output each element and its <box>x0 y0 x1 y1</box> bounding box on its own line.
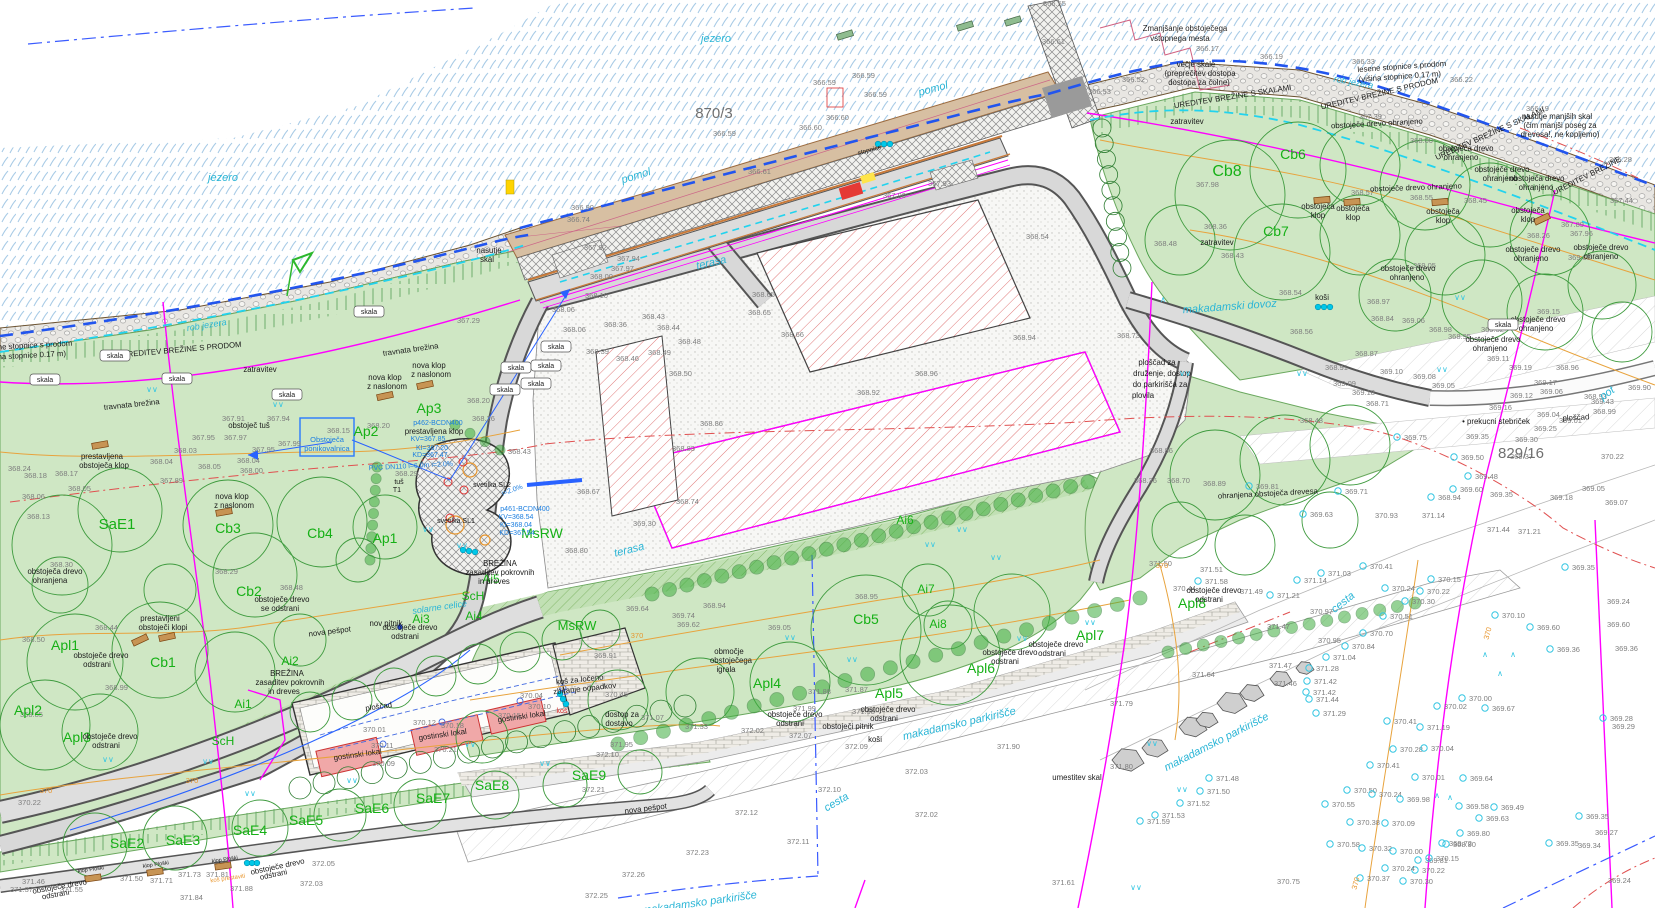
grass-tuft-mark: ∨∨ <box>539 759 551 768</box>
grass-tuft-mark: ∧ <box>1497 669 1503 678</box>
spot-elevation: 369.63 <box>1310 510 1333 519</box>
annotation-label: ohranjeno <box>1390 273 1425 282</box>
planting-code-label: Ai4 <box>465 609 483 623</box>
bush-circle <box>1029 488 1043 502</box>
spot-elevation: 370.21 <box>434 745 457 754</box>
annotation-label: BREŽINA <box>483 559 518 568</box>
bush-circle <box>371 474 381 484</box>
red-note-label: koš <box>557 708 568 715</box>
spot-elevation: 370.97 <box>1310 607 1333 616</box>
spot-elevation: 368.54 <box>1026 232 1049 241</box>
spot-elevation: 371.04 <box>1333 653 1356 662</box>
elevation-point-marker <box>1382 865 1388 871</box>
planting-code-label: Cb3 <box>215 520 241 536</box>
spot-elevation: 369.91 <box>594 651 617 660</box>
annotation-label: odstrani <box>83 660 111 669</box>
annotation-label: obstoječe drevo <box>767 710 823 719</box>
spot-elevation: 366.53 <box>1088 87 1111 96</box>
spot-elevation: 368.48 <box>678 337 701 346</box>
spot-elevation: 368.86 <box>700 419 723 428</box>
skala-tag: skala <box>169 376 185 383</box>
elevation-point-marker <box>1492 612 1498 618</box>
spot-elevation: 372.02 <box>741 726 764 735</box>
bush-circle <box>1046 484 1060 498</box>
spot-elevation: 367.92 <box>584 243 607 252</box>
bush-circle <box>767 556 781 570</box>
spot-elevation: 371.28 <box>1316 664 1339 673</box>
bush-circle <box>697 574 711 588</box>
annotation-label: se odstrani <box>261 604 299 613</box>
planting-code-label: Cb7 <box>1263 223 1289 239</box>
bush-circle <box>732 565 746 579</box>
skala-tag: skala <box>508 365 524 372</box>
spot-elevation: 366.74 <box>567 215 590 224</box>
spot-elevation: 370.15 <box>1436 854 1459 863</box>
bush-circle <box>747 699 761 713</box>
skala-tag: skala <box>107 353 123 360</box>
annotation-label: prestavljeni <box>140 614 180 623</box>
spot-elevation: 368.84 <box>1371 314 1394 323</box>
spot-elevation: 368.65 <box>752 290 775 299</box>
spot-elevation: 368.04 <box>150 457 173 466</box>
annotation-label: vstopnega mesta <box>1150 34 1210 43</box>
bush-circle <box>941 511 955 525</box>
annotation-label: obstoječe drevo <box>73 651 129 660</box>
spot-elevation: 370.75 <box>1277 877 1300 886</box>
spot-elevation: 366.59 <box>864 90 887 99</box>
spot-elevation: 368.29 <box>215 567 238 576</box>
spot-elevation: 368.26 <box>1527 231 1550 240</box>
annotation-label: zasaditev pokrovnih <box>466 568 535 577</box>
annotation-label: • prekucni stebriček <box>1462 417 1530 426</box>
bush-circle <box>959 506 973 520</box>
annotation-label: dostopa za čolne) <box>1168 78 1230 87</box>
planting-code-label: Ap2 <box>354 423 379 439</box>
spot-elevation: 371.03 <box>1328 569 1351 578</box>
annotation-label: nova klop <box>368 373 402 382</box>
spot-elevation: 369.07 <box>1605 498 1628 507</box>
spot-elevation: 368.50 <box>22 635 45 644</box>
elevation-point-marker <box>1304 678 1310 684</box>
utility-tech-label: KV=368.54 <box>499 514 534 521</box>
spot-elevation: 368.05 <box>68 484 91 493</box>
spot-elevation: 368.96 <box>915 369 938 378</box>
spot-elevation: 370.38 <box>1357 818 1380 827</box>
spot-elevation: 370.70 <box>1370 629 1393 638</box>
bush-circle <box>289 777 311 799</box>
spot-elevation: 367.93 <box>928 179 951 188</box>
annotation-label: ploščad <box>1562 412 1589 422</box>
spot-elevation: 368.49 <box>648 348 671 357</box>
spot-elevation: 370.45 <box>605 690 628 699</box>
spot-elevation: 368.70 <box>1167 476 1190 485</box>
spot-elevation: 367.89 <box>1561 220 1584 229</box>
annotation-label: zasaditev pokrovnih <box>256 678 325 687</box>
elevation-point-marker <box>1434 703 1440 709</box>
spot-elevation: 371.50 <box>120 874 143 883</box>
planting-code-label: SaE8 <box>475 777 509 793</box>
elevation-point-marker <box>1267 592 1273 598</box>
annotation-label: ohranjeno <box>1519 324 1554 333</box>
elevation-point-marker <box>1327 841 1333 847</box>
grass-tuft-mark: ∨∨ <box>1146 739 1158 748</box>
spot-elevation: 368.92 <box>857 388 880 397</box>
bush-circle <box>1110 597 1124 611</box>
bush-circle <box>369 509 379 519</box>
spot-elevation: 368.80 <box>565 546 588 555</box>
annotation-label: ohranjeno <box>1473 344 1508 353</box>
spot-elevation: 368.66 <box>781 330 804 339</box>
bush-circle <box>1180 643 1192 655</box>
spot-elevation: 369.36 <box>1557 645 1580 654</box>
utility-tech-label: Obstoječa <box>310 435 345 444</box>
spot-elevation: 369.04 <box>1537 410 1560 419</box>
contour-label: 370 <box>1482 626 1494 640</box>
elevation-point-marker <box>1206 775 1212 781</box>
spot-elevation: 369.71 <box>1345 487 1368 496</box>
annotation-label: večje skale <box>1177 60 1216 69</box>
grass-tuft-mark: ∨∨ <box>846 655 858 664</box>
cyan-dot-marker <box>1321 304 1327 310</box>
spot-elevation: 369.35 <box>1466 432 1489 441</box>
spot-elevation: 369.58 <box>1466 802 1489 811</box>
annotation-label: igrala <box>716 665 736 674</box>
utility-tech-label: KD=367.47 <box>412 452 447 459</box>
spot-elevation: 369.25 <box>1534 424 1557 433</box>
bush-circle <box>465 428 475 438</box>
spot-elevation: 368.97 <box>1367 297 1390 306</box>
spot-elevation: 368.00 <box>240 466 263 475</box>
spot-elevation: 372.21 <box>582 785 605 794</box>
grass-tuft-mark: ∧ <box>1434 791 1440 800</box>
bush-circle <box>1162 646 1174 658</box>
grass-tuft-mark: ∨∨ <box>784 633 796 642</box>
spot-elevation: 372.23 <box>686 848 709 857</box>
spot-elevation: 369.05 <box>1582 484 1605 493</box>
spot-elevation: 368.36 <box>604 320 627 329</box>
spot-elevation: 368.73 <box>1117 331 1140 340</box>
planting-code-label: SaE9 <box>572 767 606 783</box>
spot-elevation: 369.06 <box>1540 387 1563 396</box>
bush-circle <box>1065 610 1079 624</box>
elevation-point-marker <box>1491 804 1497 810</box>
spot-elevation: 370.22 <box>1601 452 1624 461</box>
bush-circle <box>906 654 920 668</box>
annotation-label: obstoječe drevo <box>1510 315 1566 324</box>
rock-polygon <box>1296 662 1314 675</box>
bush-circle <box>997 629 1011 643</box>
annotation-label: zatravitev <box>1200 238 1233 247</box>
spot-elevation: 370.22 <box>18 798 41 807</box>
planting-code-label: Cb5 <box>853 611 879 627</box>
bush-circle <box>750 560 764 574</box>
annotation-label: odstrani <box>1195 595 1223 604</box>
elevation-point-marker <box>1323 654 1329 660</box>
tree-circle <box>1215 515 1275 575</box>
annotation-label: in dreves <box>478 577 510 586</box>
spot-elevation: 369.11 <box>1487 354 1509 363</box>
spot-elevation: 368.43 <box>508 447 531 456</box>
annotation-label: in dreves <box>268 687 300 696</box>
cyan-dot-marker <box>563 701 569 707</box>
spot-elevation: 366.17 <box>1196 44 1219 53</box>
spot-elevation: 369.60 <box>1460 485 1483 494</box>
bush-circle <box>1081 475 1095 489</box>
spot-elevation: 372.02 <box>915 810 938 819</box>
spot-elevation: 371.29 <box>1323 709 1346 718</box>
spot-elevation: 368.94 <box>1438 493 1461 502</box>
bush-circle <box>793 686 807 700</box>
spot-elevation: 368.05 <box>198 462 221 471</box>
spot-elevation: 367.98 <box>1196 180 1219 189</box>
spot-elevation: 372.03 <box>300 879 323 888</box>
spot-elevation: 369.16 <box>1489 403 1512 412</box>
spot-elevation: 368.36 <box>1204 222 1227 231</box>
spot-elevation: 371.59 <box>1147 817 1170 826</box>
annotation-label: obstoječe drevo <box>1028 640 1084 649</box>
elevation-point-marker <box>1390 746 1396 752</box>
bush-circle <box>1133 591 1147 605</box>
grass-tuft-mark: ∨∨ <box>456 541 468 550</box>
spot-elevation: 370.93 <box>1375 511 1398 520</box>
elevation-point-marker <box>1177 800 1183 806</box>
grass-tuft-mark: ∨∨ <box>102 755 114 764</box>
spot-elevation: 370.32 <box>1369 844 1392 853</box>
spot-elevation: 370.55 <box>1332 800 1355 809</box>
spot-elevation: 367.95 <box>192 433 215 442</box>
parcel-number-870-3: 870/3 <box>695 105 733 122</box>
spot-elevation: 371.88 <box>808 687 831 696</box>
bush-circle <box>480 437 490 447</box>
annotation-label: obstoječi klopi <box>139 623 188 632</box>
planting-code-label: Ai7 <box>917 582 935 596</box>
annotation-label: svetilka SL1 <box>437 518 475 525</box>
spot-elevation: 369.48 <box>1475 472 1498 481</box>
spot-elevation: 369.18 <box>1550 493 1573 502</box>
spot-elevation: 369.30 <box>1515 435 1538 444</box>
spot-elevation: 366.59 <box>813 78 836 87</box>
spot-elevation: 368.46 <box>616 354 639 363</box>
bush-circle <box>1088 604 1102 618</box>
annotation-label: odstrani <box>776 719 804 728</box>
annotation-label: obstoječega <box>710 656 753 665</box>
bush-circle <box>785 551 799 565</box>
annotation-label: obstoječe drevo <box>254 595 310 604</box>
spot-elevation: 371.88 <box>230 884 253 893</box>
spot-elevation: 368.04 <box>237 456 260 465</box>
spot-elevation: 368.95 <box>855 592 878 601</box>
spot-elevation: 369.67 <box>1492 704 1515 713</box>
grass-tuft-mark: ∧ <box>1510 650 1516 659</box>
elevation-point-marker <box>1456 803 1462 809</box>
spot-elevation: 371.21 <box>1277 591 1300 600</box>
cyan-dot-marker <box>881 141 887 147</box>
bush-circle <box>819 542 833 556</box>
spot-elevation: 371.84 <box>180 893 203 902</box>
annotation-label: obstoječa <box>1301 202 1335 211</box>
annotation-label: (preprečitev dostopa <box>1164 69 1236 78</box>
spot-elevation: 368.48 <box>1154 239 1177 248</box>
spot-elevation: 369.98 <box>1407 795 1430 804</box>
spot-elevation: 366.55 <box>1043 0 1066 8</box>
spot-elevation: 370.95 <box>1318 636 1341 645</box>
spot-elevation: 372.07 <box>789 731 812 740</box>
bush-circle <box>929 648 943 662</box>
spot-elevation: 370.09 <box>1392 819 1415 828</box>
contour-label: 370 <box>1156 561 1169 570</box>
bush-circle <box>1042 616 1056 630</box>
annotation-label: obstoječe drevo <box>860 705 916 714</box>
spot-elevation: 368.54 <box>1279 288 1302 297</box>
spot-elevation: 371.21 <box>1518 527 1541 536</box>
bush-circle <box>1303 618 1315 630</box>
bush-circle <box>951 642 965 656</box>
grass-tuft-mark: ∨∨ <box>956 525 968 534</box>
spot-elevation: 369.35 <box>1490 490 1513 499</box>
cyan-dot-marker <box>1327 304 1333 310</box>
spot-elevation: 369.60 <box>1607 620 1630 629</box>
annotation-label: Zmanjšanje obstoječega <box>1143 24 1228 33</box>
spot-elevation: 368.00 <box>590 272 613 281</box>
bush-circle <box>1321 615 1333 627</box>
planting-code-label: MsRW <box>558 618 597 633</box>
spot-elevation: 370.00 <box>1469 694 1492 703</box>
elevation-point-marker <box>1546 840 1552 846</box>
spot-elevation: 368.00 <box>1410 136 1433 145</box>
bush-circle <box>883 661 897 675</box>
annotation-label: obstoječa klop <box>79 461 130 470</box>
annotation-label: obstoječe drevo <box>1505 245 1561 254</box>
spot-elevation: 372.03 <box>905 767 928 776</box>
boundary-dashdot-topleft <box>28 8 475 44</box>
annotation-label: ploščad za <box>1138 358 1176 367</box>
spot-elevation: 371.50 <box>1207 787 1230 796</box>
annotation-label: T1 <box>393 487 401 494</box>
spot-elevation: 371.71 <box>150 876 173 885</box>
spot-elevation: 371.90 <box>997 742 1020 751</box>
bush-circle <box>368 520 378 530</box>
bush-circle <box>872 529 886 543</box>
elevation-point-marker <box>1562 564 1568 570</box>
spot-elevation: 371.44 <box>1487 525 1510 534</box>
elevation-point-marker <box>1415 857 1421 863</box>
spot-elevation: 371.47 <box>1267 622 1290 631</box>
bush-circle <box>1197 639 1209 651</box>
annotation-label: umestitev skal <box>1052 773 1102 782</box>
spot-elevation: 368.13 <box>27 512 50 521</box>
bush-circle <box>365 555 375 565</box>
road-name-label: makadamsko parkirišče <box>642 889 758 908</box>
bush-circle <box>837 538 851 552</box>
spot-elevation: 371.37 <box>10 885 33 894</box>
annotation-label: nasutje <box>476 246 501 255</box>
spot-elevation: 366.52 <box>1122 75 1145 84</box>
annotation-label: klop <box>1521 215 1536 224</box>
spot-elevation: 372.25 <box>585 891 608 900</box>
spot-elevation: 368.96 <box>1556 363 1579 372</box>
spot-elevation: 371.95 <box>610 740 633 749</box>
elevation-point-marker <box>1482 705 1488 711</box>
spot-elevation: 367.29 <box>457 316 480 325</box>
elevation-point-marker <box>1457 830 1463 836</box>
utility-tech-label: KV=367.85 <box>411 436 446 443</box>
grass-tuft-mark: ∨∨ <box>990 553 1002 562</box>
spot-elevation: 370.51 <box>1390 612 1413 621</box>
spot-elevation: 368.90 <box>1453 840 1476 849</box>
road-name-label: jezero <box>699 33 731 45</box>
spot-elevation: 368.10 <box>585 291 608 300</box>
spot-elevation: 369.17 <box>1534 378 1557 387</box>
spot-elevation: 370.01 <box>1422 773 1445 782</box>
annotation-label: obstoječe drevo <box>382 623 438 632</box>
spot-elevation: 370.12 <box>413 718 436 727</box>
bush-circle <box>861 667 875 681</box>
bush-circle <box>1109 228 1127 246</box>
annotation-label: obstoječe drevo <box>1380 264 1436 273</box>
planting-code-label: Ap1 <box>373 530 398 546</box>
elevation-point-marker <box>1384 718 1390 724</box>
spot-elevation: 368.44 <box>657 323 680 332</box>
spot-elevation: 366.22 <box>1450 75 1473 84</box>
bush-circle <box>1064 479 1078 493</box>
spot-elevation: 368.94 <box>1013 333 1036 342</box>
spot-elevation: 367.89 <box>160 476 183 485</box>
elevation-point-marker <box>1527 624 1533 630</box>
annotation-label: prestavljena <box>81 452 124 461</box>
spot-elevation: 372.12 <box>735 808 758 817</box>
spot-elevation: 369.34 <box>1578 841 1601 850</box>
bush-circle <box>369 497 379 507</box>
spot-elevation: 370.37 <box>1367 874 1390 883</box>
spot-elevation: 368.24 <box>8 464 31 473</box>
planting-code-label: Apl4 <box>753 675 781 691</box>
spot-elevation: 368.48 <box>280 583 303 592</box>
spot-elevation: 367.90 <box>883 191 906 200</box>
elevation-point-marker <box>1347 819 1353 825</box>
elevation-point-marker <box>1547 646 1553 652</box>
planting-code-label: ScH <box>462 589 485 603</box>
spot-elevation: 366.90 <box>571 203 594 212</box>
tree-circle <box>1302 492 1358 548</box>
annotation-label: z naslonom <box>367 382 407 391</box>
annotation-label: odstrani <box>991 657 1019 666</box>
bush-circle <box>1374 604 1386 616</box>
planting-code-label: ScH <box>212 734 235 748</box>
grass-tuft-mark: ∨∨ <box>1436 365 1448 374</box>
spot-elevation: 370.22 <box>1422 866 1445 875</box>
spot-elevation: 366.59 <box>852 71 875 80</box>
elevation-point-marker <box>1428 494 1434 500</box>
skala-tag: skala <box>279 392 295 399</box>
utility-tech-label: ponikovalnica <box>304 444 350 453</box>
elevation-point-marker <box>1451 454 1457 460</box>
annotation-label: obstoječa drevo <box>1438 144 1494 153</box>
spot-elevation: 368.99 <box>1593 407 1616 416</box>
annotation-label: odstrani <box>870 714 898 723</box>
annotation-label: ohranjeno <box>1444 153 1479 162</box>
elevation-point-marker <box>1342 643 1348 649</box>
spot-elevation: 368.26 <box>472 414 495 423</box>
annotation-label: svetilka SL2 <box>473 482 511 489</box>
spot-elevation: 368.20 <box>467 396 490 405</box>
grass-tuft-mark: ∨∨ <box>924 540 936 549</box>
spot-elevation: 370.58 <box>1337 840 1360 849</box>
cyan-dot-marker <box>560 696 566 702</box>
spot-elevation: 372.10 <box>818 785 841 794</box>
spot-elevation: 369.80 <box>1467 829 1490 838</box>
annotation-label: zatravitev <box>243 365 276 374</box>
spot-elevation: 368.43 <box>1221 251 1244 260</box>
